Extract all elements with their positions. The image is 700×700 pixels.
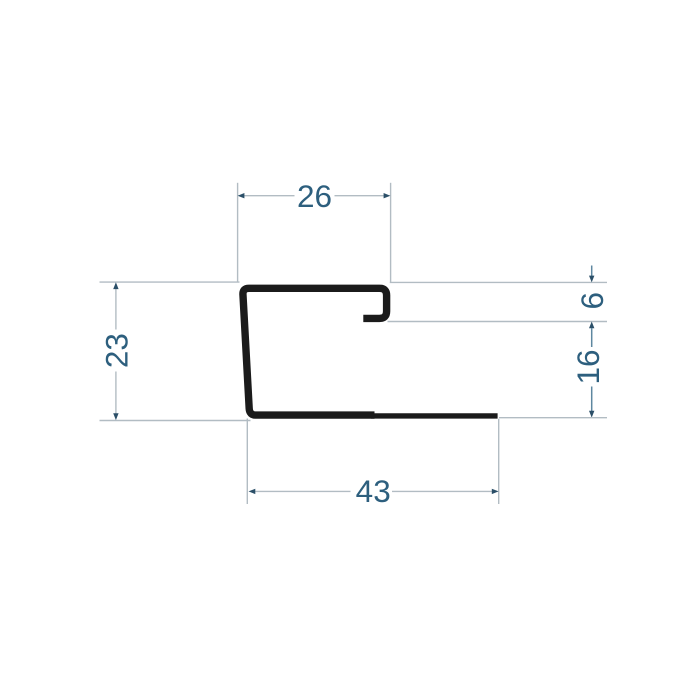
svg-text:16: 16 <box>570 349 606 384</box>
svg-text:23: 23 <box>98 333 134 368</box>
svg-text:26: 26 <box>297 178 332 214</box>
svg-text:6: 6 <box>574 292 610 310</box>
svg-text:43: 43 <box>356 473 391 509</box>
